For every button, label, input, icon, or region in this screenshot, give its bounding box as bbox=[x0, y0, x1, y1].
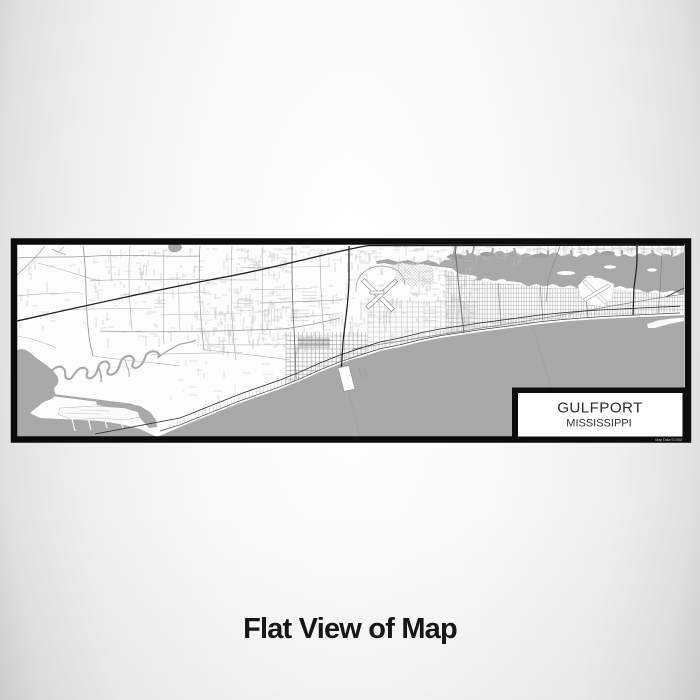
svg-text:Map Data ©OSM: Map Data ©OSM bbox=[655, 438, 682, 442]
svg-text:MISSISSIPPI: MISSISSIPPI bbox=[566, 417, 631, 429]
svg-text:GULFPORT: GULFPORT bbox=[557, 400, 643, 417]
